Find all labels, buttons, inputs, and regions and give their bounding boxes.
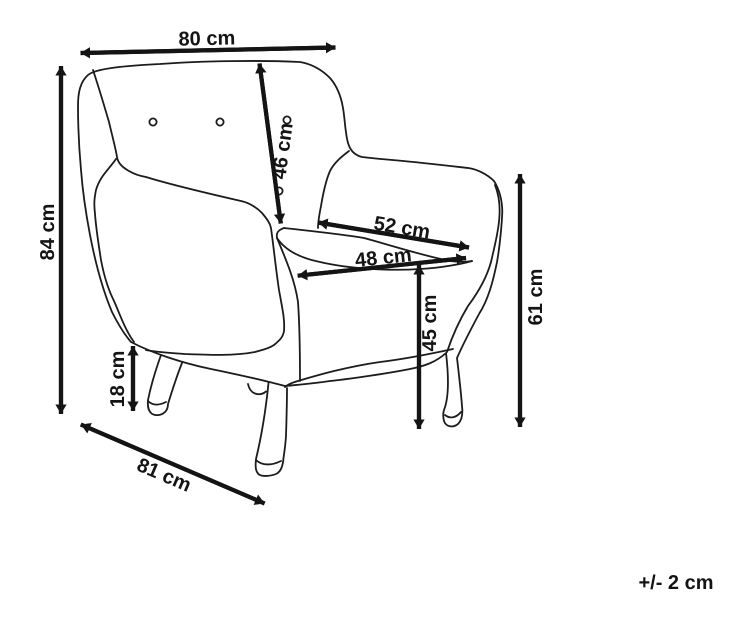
svg-text:18 cm: 18 cm: [107, 351, 129, 408]
svg-text:61 cm: 61 cm: [525, 269, 547, 326]
svg-text:45 cm: 45 cm: [419, 295, 441, 352]
svg-text:84 cm: 84 cm: [37, 204, 59, 261]
svg-text:+/- 2 cm: +/- 2 cm: [638, 572, 713, 594]
svg-text:46 cm: 46 cm: [268, 121, 297, 180]
svg-text:80 cm: 80 cm: [178, 27, 235, 50]
svg-text:52 cm: 52 cm: [372, 213, 432, 244]
svg-text:48 cm: 48 cm: [354, 244, 413, 272]
